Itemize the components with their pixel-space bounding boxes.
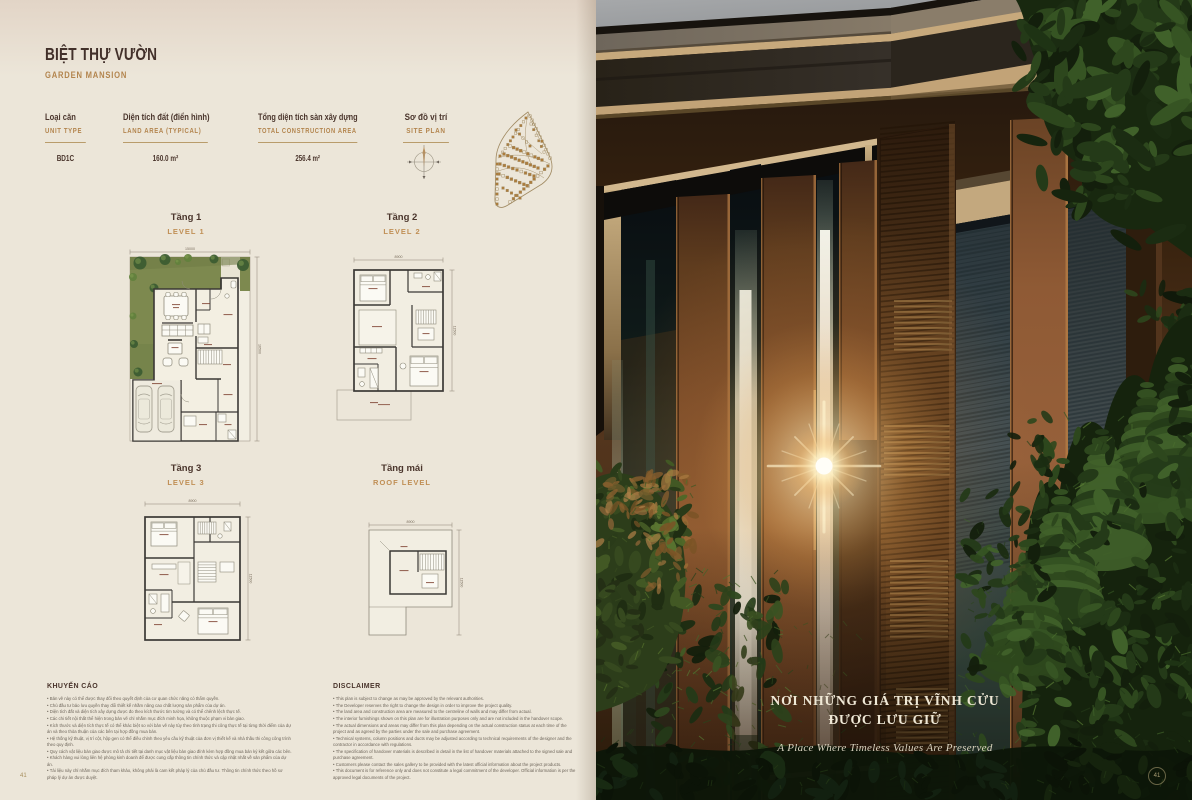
- svg-text:8900: 8900: [407, 520, 415, 524]
- svg-text:15000: 15000: [185, 247, 195, 251]
- svg-text:16500: 16500: [258, 344, 262, 354]
- svg-text:11500: 11500: [460, 578, 464, 588]
- svg-text:11500: 11500: [453, 326, 457, 336]
- svg-text:8900: 8900: [395, 255, 403, 259]
- svg-text:8900: 8900: [189, 499, 197, 503]
- svg-text:11500: 11500: [249, 574, 253, 584]
